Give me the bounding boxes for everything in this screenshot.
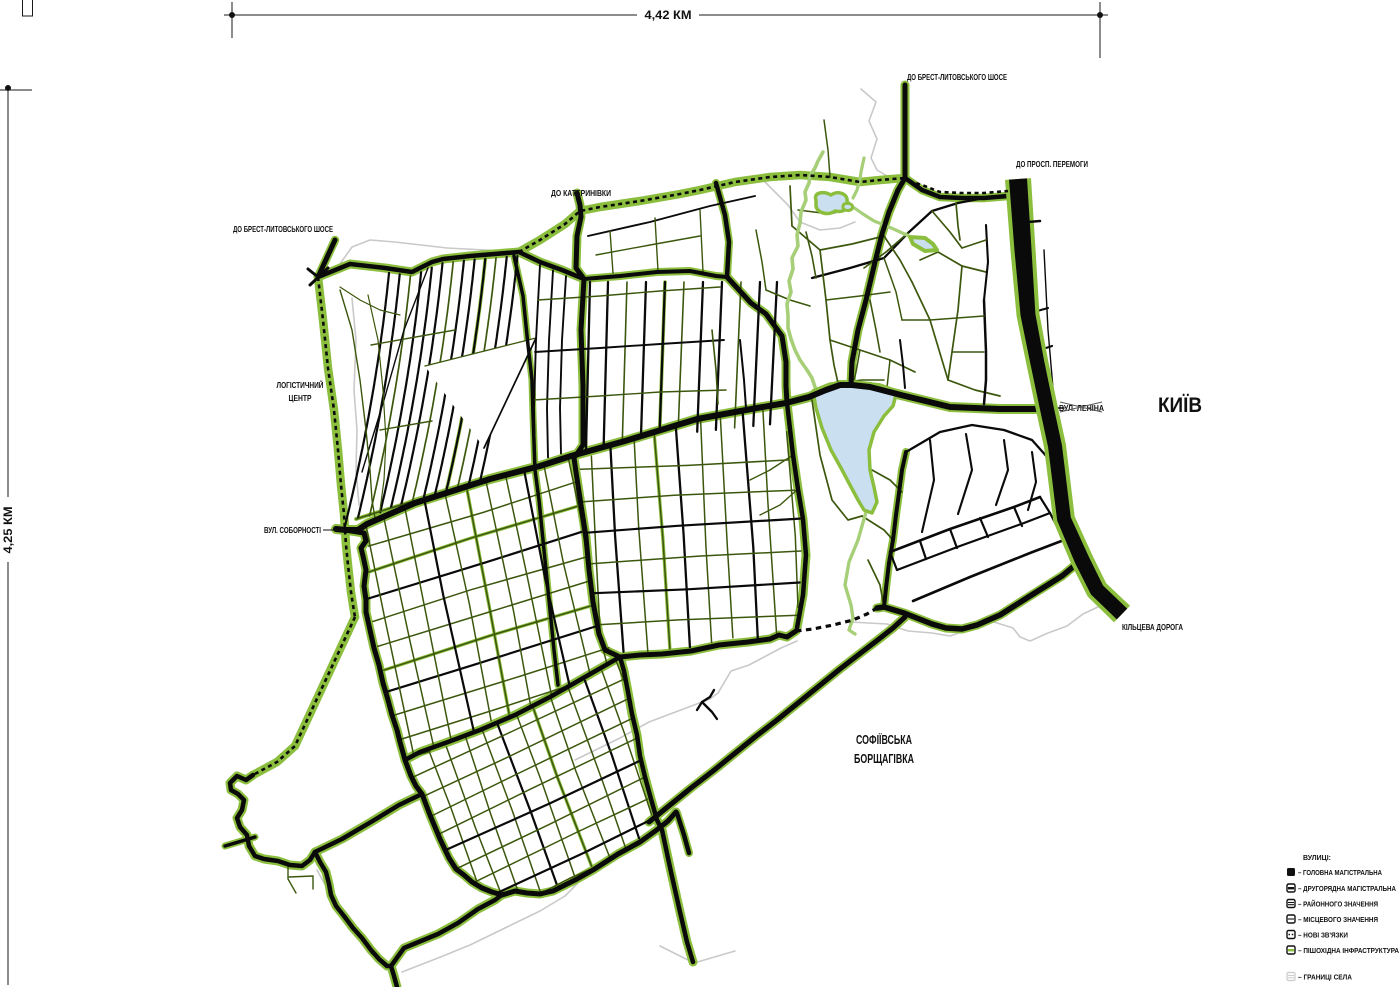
svg-text:ДО ПРОСП. ПЕРЕМОГИ: ДО ПРОСП. ПЕРЕМОГИ (1016, 159, 1088, 169)
svg-text:ЛОГІСТИЧНИЙ: ЛОГІСТИЧНИЙ (277, 379, 324, 390)
svg-text:ДО БРЕСТ-ЛИТОВСЬКОГО ШОСЕ: ДО БРЕСТ-ЛИТОВСЬКОГО ШОСЕ (233, 224, 333, 234)
svg-text:ДО БРЕСТ-ЛИТОВСЬКОГО ШОСЕ: ДО БРЕСТ-ЛИТОВСЬКОГО ШОСЕ (907, 72, 1007, 82)
svg-text:ВУЛ. ЛЕНІНА: ВУЛ. ЛЕНІНА (1059, 404, 1104, 413)
svg-text:– ГРАНИЦІ СЕЛА: – ГРАНИЦІ СЕЛА (1298, 973, 1352, 982)
svg-text:ЦЕНТР: ЦЕНТР (289, 393, 312, 403)
svg-text:– РАЙОННОГО ЗНАЧЕННЯ: – РАЙОННОГО ЗНАЧЕННЯ (1298, 900, 1378, 909)
svg-text:ДО КАТЕРИНІВКИ: ДО КАТЕРИНІВКИ (551, 188, 611, 198)
svg-text:– ДРУГОРЯДНА МАГІСТРАЛЬНА: – ДРУГОРЯДНА МАГІСТРАЛЬНА (1298, 884, 1396, 893)
svg-text:– МІСЦЕВОГО ЗНАЧЕННЯ: – МІСЦЕВОГО ЗНАЧЕННЯ (1298, 915, 1378, 924)
svg-text:– ПІШОХІДНА ІНФРАСТРУКТУРА: – ПІШОХІДНА ІНФРАСТРУКТУРА (1298, 946, 1399, 955)
svg-text:4,25 КМ: 4,25 КМ (1, 507, 15, 554)
svg-text:ВУЛИЦІ:: ВУЛИЦІ: (1303, 853, 1331, 862)
svg-text:КІЛЬЦЕВА ДОРОГА: КІЛЬЦЕВА ДОРОГА (1122, 622, 1183, 632)
svg-text:БОРЩАГІВКА: БОРЩАГІВКА (854, 751, 914, 766)
svg-text:– ГОЛОВНА МАГІСТРАЛЬНА: – ГОЛОВНА МАГІСТРАЛЬНА (1298, 868, 1382, 877)
svg-text:ВУЛ. СОБОРНОСТІ: ВУЛ. СОБОРНОСТІ (264, 525, 321, 535)
svg-text:– НОВІ ЗВ'ЯЗКИ: – НОВІ ЗВ'ЯЗКИ (1298, 931, 1348, 940)
svg-text:4,42 КМ: 4,42 КМ (645, 8, 692, 22)
svg-text:СОФІЇВСЬКА: СОФІЇВСЬКА (856, 732, 912, 747)
svg-text:КИЇВ: КИЇВ (1158, 394, 1202, 417)
